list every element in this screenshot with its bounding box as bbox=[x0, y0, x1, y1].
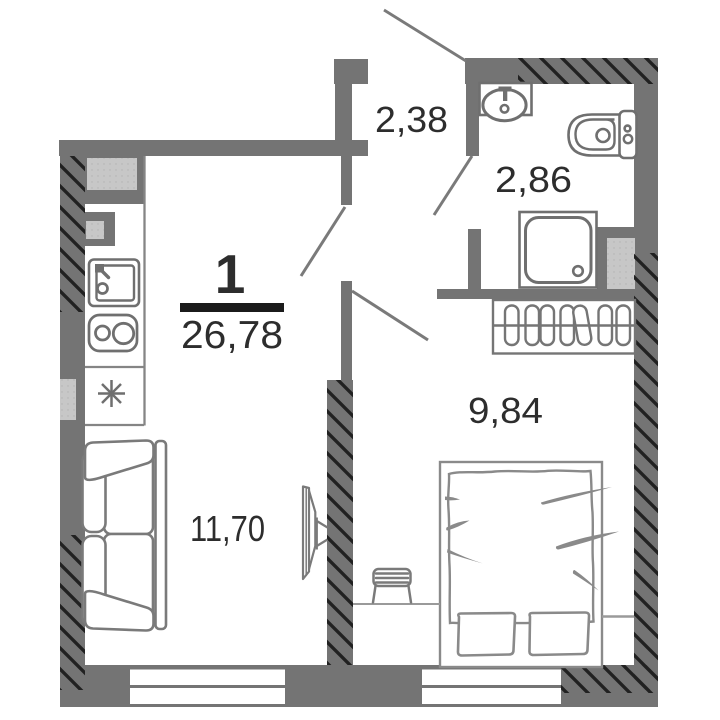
svg-text:9,84: 9,84 bbox=[468, 390, 543, 431]
svg-text:26,78: 26,78 bbox=[181, 314, 283, 357]
svg-text:11,70: 11,70 bbox=[190, 508, 265, 549]
svg-text:2,86: 2,86 bbox=[495, 159, 572, 200]
svg-text:2,38: 2,38 bbox=[375, 99, 448, 140]
svg-text:1: 1 bbox=[215, 243, 246, 305]
